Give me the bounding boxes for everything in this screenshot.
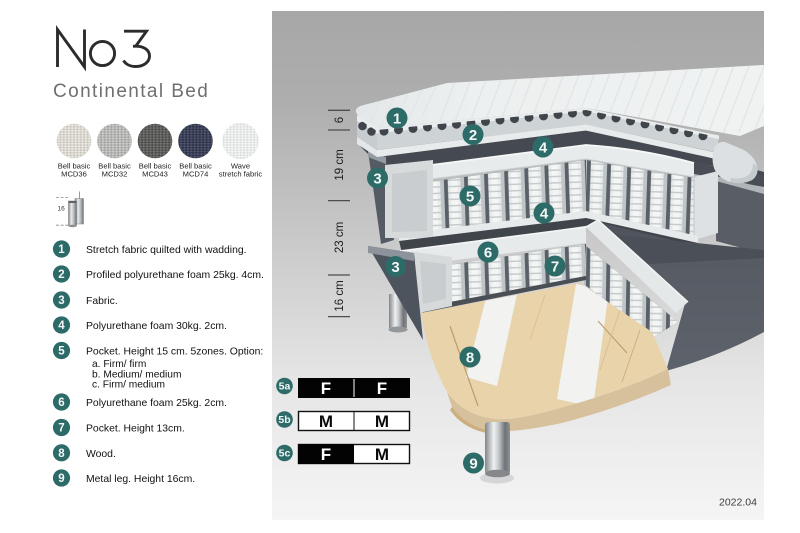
svg-text:7: 7	[551, 258, 559, 275]
svg-text:M: M	[375, 412, 389, 431]
svg-text:2022.04: 2022.04	[719, 497, 757, 509]
svg-text:F: F	[321, 445, 331, 464]
svg-text:5a: 5a	[279, 381, 291, 393]
svg-text:3: 3	[391, 259, 399, 276]
svg-text:8: 8	[466, 349, 474, 366]
svg-text:4: 4	[539, 139, 548, 156]
svg-text:6: 6	[334, 117, 346, 123]
svg-text:16 cm: 16 cm	[334, 280, 346, 311]
svg-text:3: 3	[373, 170, 381, 187]
svg-text:5c: 5c	[279, 448, 291, 460]
svg-text:M: M	[375, 445, 389, 464]
svg-text:6: 6	[484, 244, 492, 261]
svg-text:5b: 5b	[278, 414, 290, 426]
svg-text:23 cm: 23 cm	[334, 222, 346, 253]
svg-text:F: F	[377, 379, 387, 398]
svg-text:1: 1	[393, 110, 401, 127]
svg-text:F: F	[321, 379, 331, 398]
svg-text:9: 9	[469, 455, 477, 472]
svg-text:5: 5	[466, 188, 474, 205]
svg-text:2: 2	[469, 127, 477, 144]
svg-text:M: M	[319, 412, 333, 431]
svg-text:19 cm: 19 cm	[334, 149, 346, 180]
svg-text:4: 4	[540, 205, 549, 222]
